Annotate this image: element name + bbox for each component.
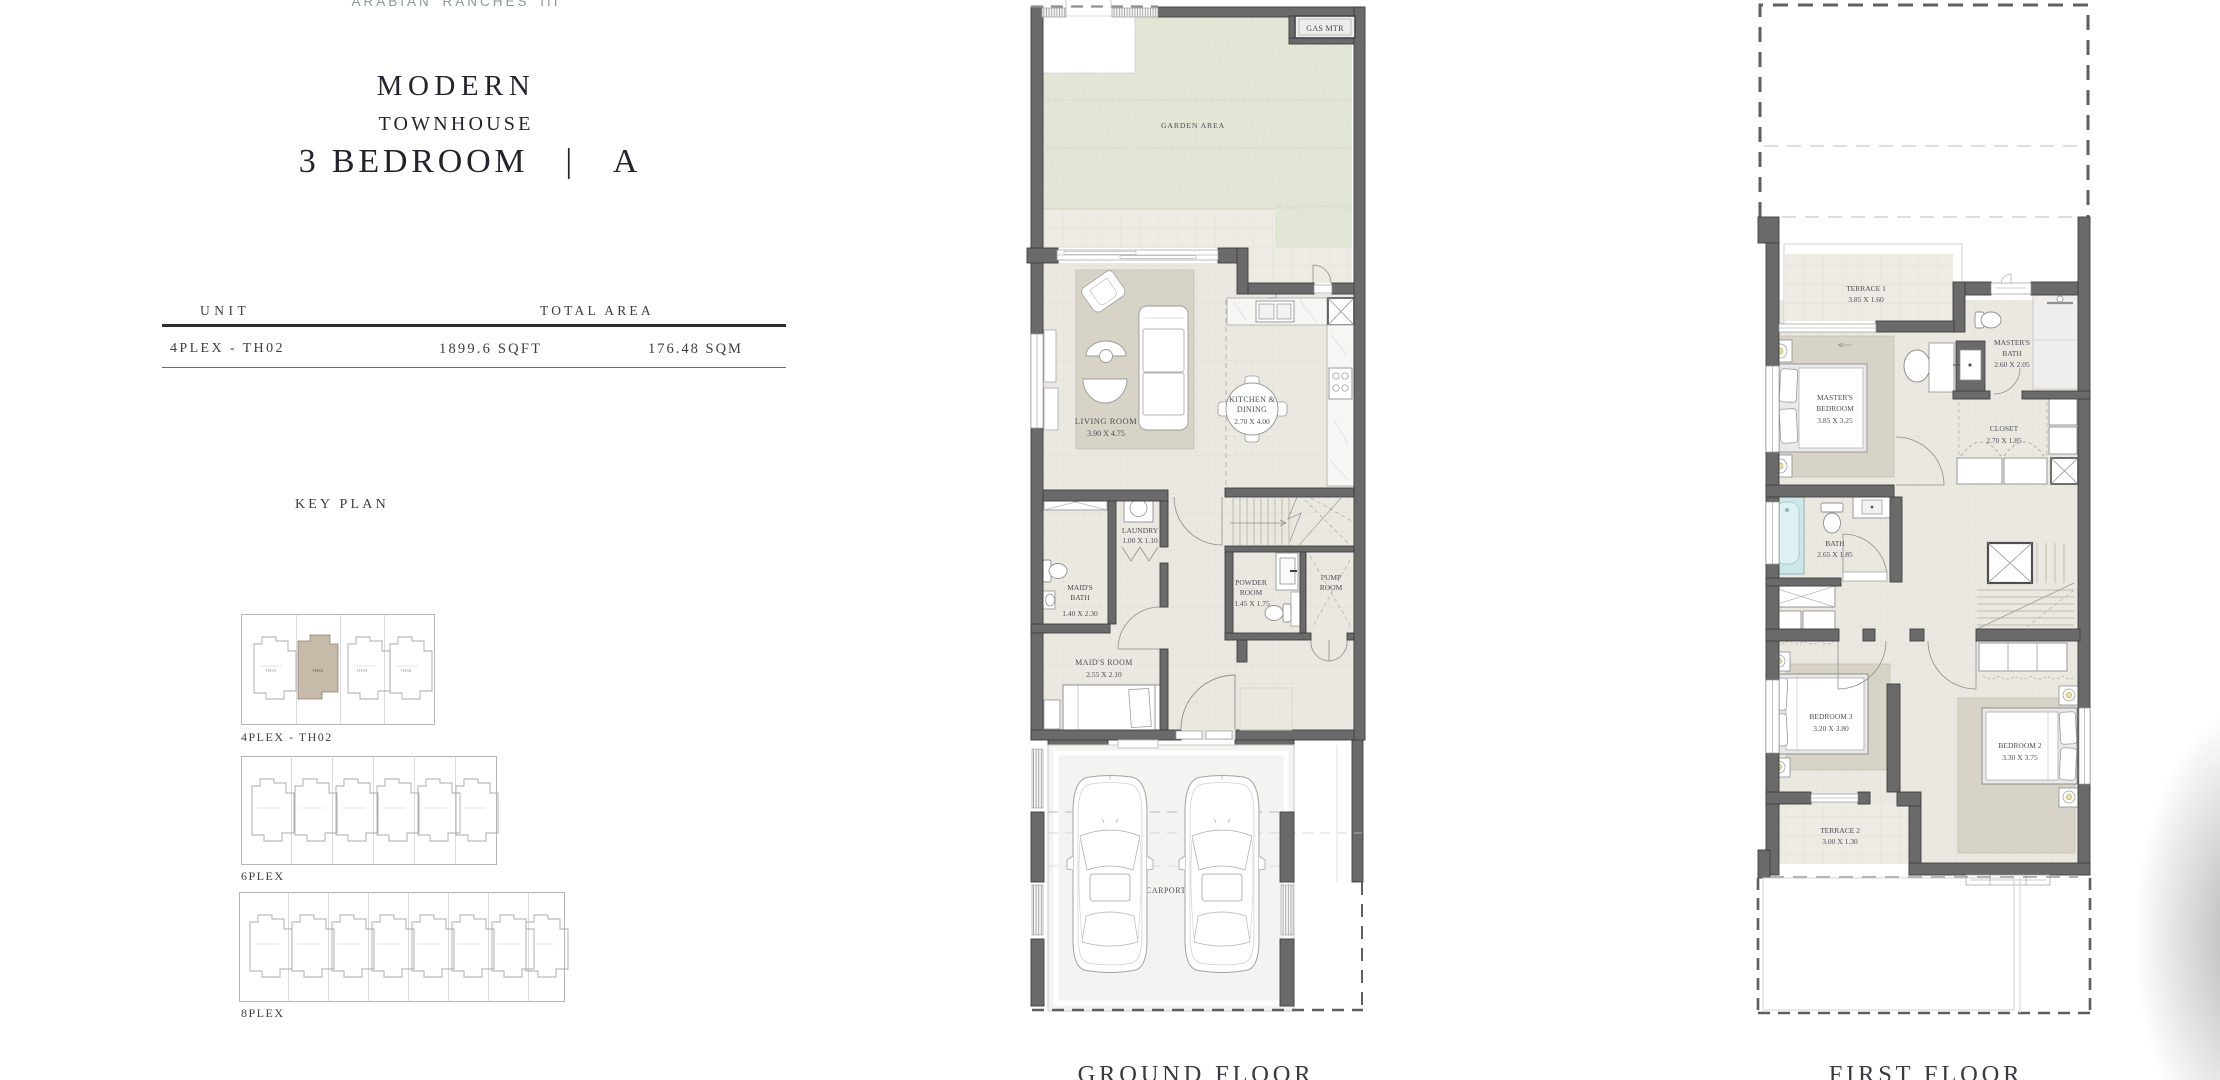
svg-text:BEDROOM 3: BEDROOM 3: [1809, 712, 1852, 721]
svg-text:POWDER: POWDER: [1235, 578, 1267, 587]
svg-text:BEDROOM 2: BEDROOM 2: [1998, 741, 2041, 750]
svg-text:3.00 X 1.30: 3.00 X 1.30: [1822, 837, 1858, 846]
svg-text:8PLEX: 8PLEX: [241, 1006, 285, 1020]
svg-text:BATH: BATH: [1825, 539, 1845, 548]
svg-text:GARDEN AREA: GARDEN AREA: [1161, 121, 1225, 130]
svg-text:TERRACE 2: TERRACE 2: [1820, 826, 1860, 835]
svg-text:6PLEX: 6PLEX: [241, 869, 285, 883]
svg-text:BEDROOM: BEDROOM: [1816, 404, 1854, 413]
svg-text:MAID'S: MAID'S: [1067, 583, 1093, 592]
svg-text:LAUNDRY: LAUNDRY: [1122, 526, 1159, 535]
svg-text:2.65 X 1.85: 2.65 X 1.85: [1817, 550, 1853, 559]
svg-text:BATH: BATH: [1070, 593, 1090, 602]
svg-text:MASTER'S: MASTER'S: [1817, 393, 1853, 402]
svg-text:TH-02: TH-02: [313, 668, 324, 673]
svg-text:GAS MTR: GAS MTR: [1306, 24, 1344, 33]
svg-text:2.55 X 2.10: 2.55 X 2.10: [1086, 670, 1122, 679]
svg-text:1.45 X 1.75: 1.45 X 1.75: [1234, 599, 1270, 608]
svg-text:1.40 X 2.30: 1.40 X 2.30: [1062, 609, 1098, 618]
svg-text:3.90 X 4.75: 3.90 X 4.75: [1087, 429, 1125, 438]
svg-text:2.70 X 1.85: 2.70 X 1.85: [1986, 436, 2022, 445]
svg-text:3.20 X 3.80: 3.20 X 3.80: [1813, 724, 1849, 733]
svg-text:4PLEX - TH02: 4PLEX - TH02: [241, 730, 333, 744]
svg-text:TH-04: TH-04: [401, 668, 412, 673]
svg-text:DINING: DINING: [1237, 405, 1267, 414]
svg-text:1.00 X 1.10: 1.00 X 1.10: [1122, 536, 1158, 545]
svg-text:TERRACE 1: TERRACE 1: [1846, 284, 1886, 293]
svg-text:MAID'S ROOM: MAID'S ROOM: [1075, 658, 1133, 667]
svg-text:TH-01: TH-01: [266, 668, 277, 673]
svg-text:CARPORT: CARPORT: [1146, 886, 1186, 895]
svg-text:ROOM: ROOM: [1320, 583, 1343, 592]
svg-text:3.85 X 3.25: 3.85 X 3.25: [1817, 416, 1853, 425]
svg-text:MASTER'S: MASTER'S: [1994, 338, 2030, 347]
svg-text:BATH: BATH: [2002, 349, 2022, 358]
svg-text:2.60 X 2.05: 2.60 X 2.05: [1994, 360, 2030, 369]
svg-text:TH-03: TH-03: [357, 668, 368, 673]
svg-text:3.30 X 3.75: 3.30 X 3.75: [2002, 753, 2038, 762]
svg-text:3.85 X 1.60: 3.85 X 1.60: [1848, 295, 1884, 304]
svg-text:KITCHEN &: KITCHEN &: [1229, 395, 1276, 404]
svg-text:LIVING ROOM: LIVING ROOM: [1075, 416, 1137, 426]
svg-text:CLOSET: CLOSET: [1990, 424, 2019, 433]
svg-text:ROOM: ROOM: [1240, 588, 1263, 597]
svg-text:2.70 X 4.00: 2.70 X 4.00: [1234, 417, 1270, 426]
